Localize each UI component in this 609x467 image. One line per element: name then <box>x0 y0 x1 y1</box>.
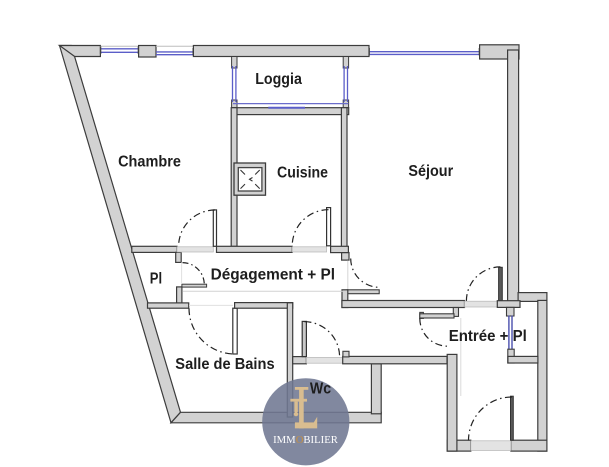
svg-text:Séjour: Séjour <box>408 163 453 180</box>
svg-text:IMMOBILIER: IMMOBILIER <box>273 434 338 446</box>
svg-text:Chambre: Chambre <box>118 154 181 171</box>
svg-text:Entrée + Pl: Entrée + Pl <box>449 328 527 345</box>
svg-text:Wc: Wc <box>310 381 331 398</box>
svg-text:Loggia: Loggia <box>255 71 302 88</box>
svg-text:Salle de Bains: Salle de Bains <box>175 356 274 373</box>
svg-text:Pl: Pl <box>150 270 162 287</box>
svg-text:Dégagement + Pl: Dégagement + Pl <box>211 266 335 283</box>
svg-text:Cuisine: Cuisine <box>277 164 328 181</box>
